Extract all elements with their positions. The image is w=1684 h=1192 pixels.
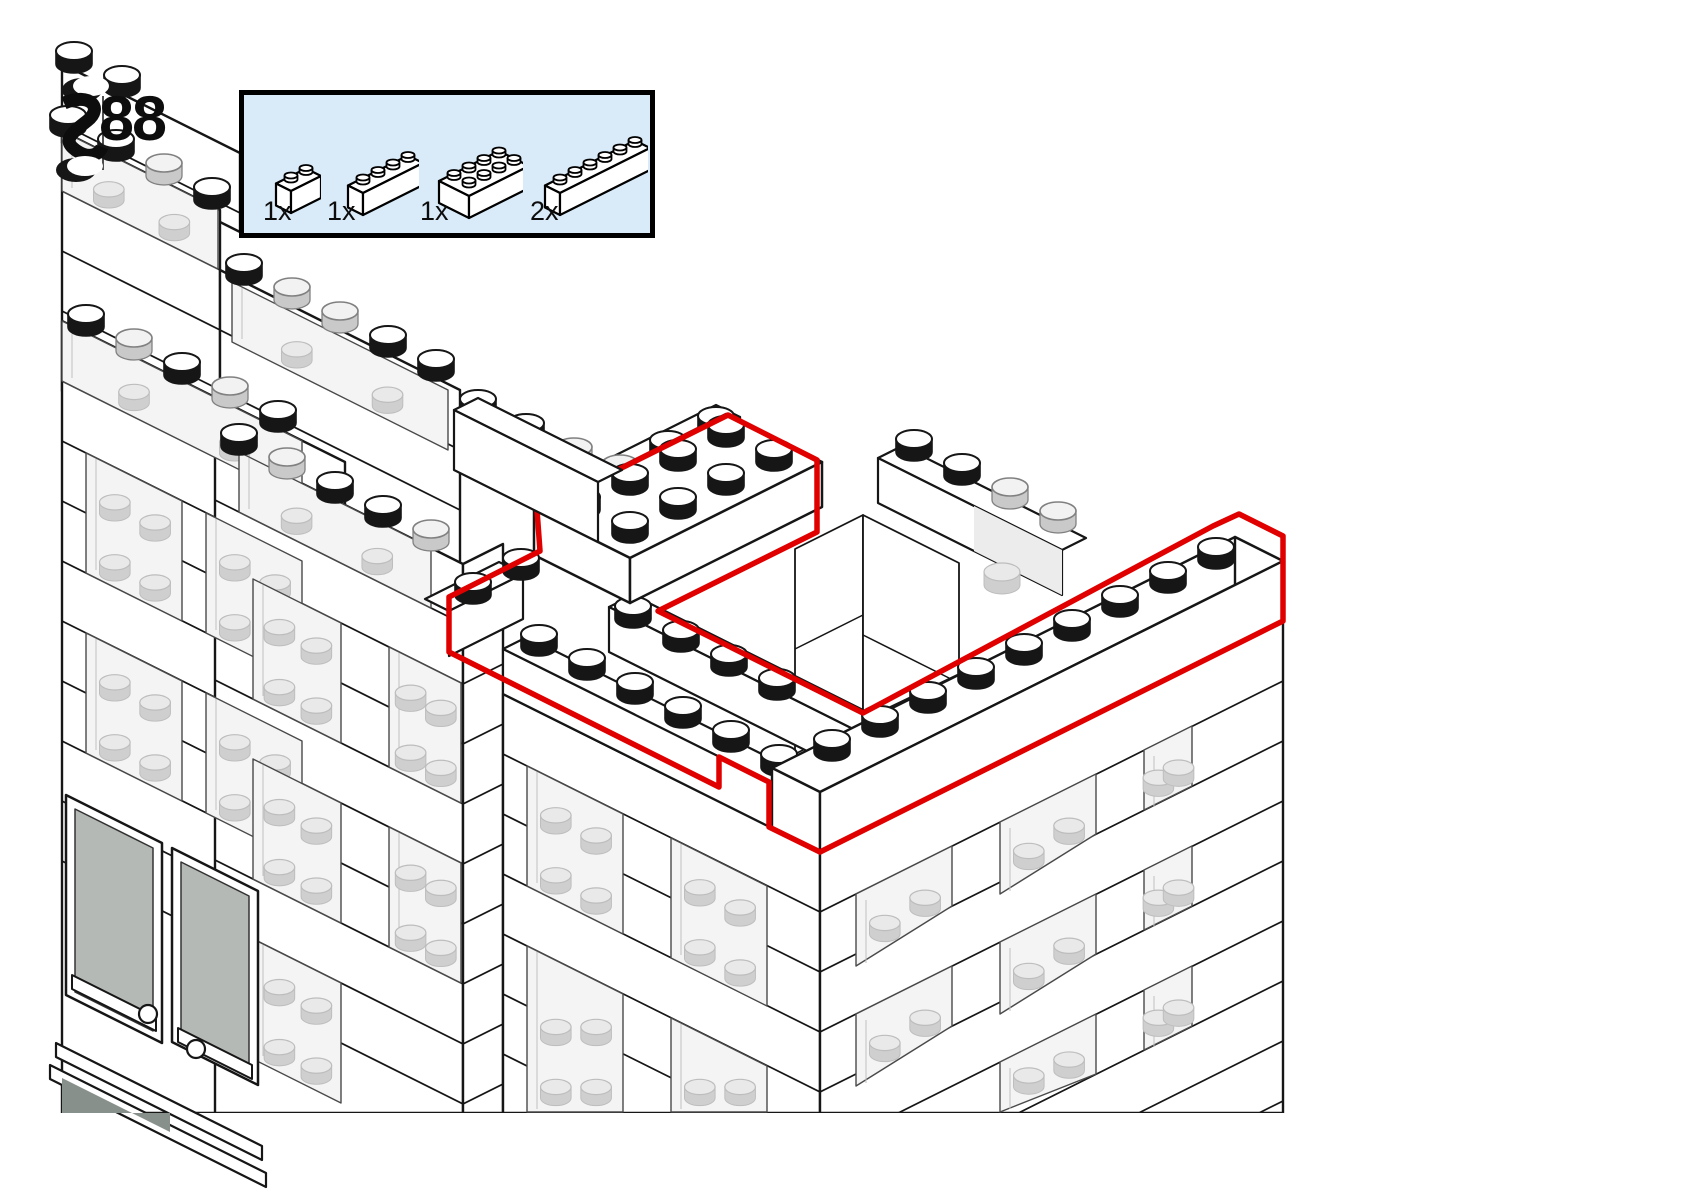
stud [870, 915, 901, 941]
stud [1163, 760, 1194, 786]
stud [140, 575, 171, 601]
stud [116, 329, 152, 360]
stud [220, 735, 251, 761]
stud [264, 860, 295, 886]
stud [100, 675, 131, 701]
stud [194, 178, 230, 209]
stud [1163, 1000, 1194, 1026]
stud [56, 42, 92, 73]
stud [1150, 562, 1186, 593]
stud [322, 302, 358, 333]
stud [870, 1035, 901, 1061]
stud [685, 880, 716, 906]
stud [395, 865, 426, 891]
stud [521, 625, 557, 656]
stud [226, 254, 262, 285]
stud [541, 1019, 572, 1045]
framed-window [172, 848, 258, 1085]
stud [301, 638, 332, 664]
stud [418, 350, 454, 381]
stud [665, 697, 701, 728]
stud [220, 555, 251, 581]
instruction-page: 88 1x 1x 1x 2x [0, 0, 1684, 1192]
stud [1014, 963, 1045, 989]
stud [725, 900, 756, 926]
stud [725, 960, 756, 986]
stud [264, 980, 295, 1006]
stud [68, 305, 104, 336]
part-quantity: 1x [327, 196, 356, 227]
stud [100, 555, 131, 581]
stud [220, 795, 251, 821]
stud [541, 808, 572, 834]
stud [944, 454, 980, 485]
stud [146, 154, 182, 185]
stud [1006, 634, 1042, 665]
stud [685, 940, 716, 966]
stud [910, 1010, 941, 1036]
stud [660, 488, 696, 519]
stud [958, 658, 994, 689]
stud [93, 182, 124, 208]
stud [100, 495, 131, 521]
stud [159, 214, 190, 240]
part-quantity: 1x [420, 196, 449, 227]
stud [269, 448, 305, 479]
stud [617, 673, 653, 704]
stud [164, 353, 200, 384]
stud [910, 890, 941, 916]
stud [282, 342, 313, 368]
stud [1163, 880, 1194, 906]
stud [713, 721, 749, 752]
stud [260, 401, 296, 432]
stud [395, 745, 426, 771]
stud [301, 998, 332, 1024]
stud [1054, 818, 1085, 844]
stud [365, 496, 401, 527]
stud [264, 680, 295, 706]
part-quantity: 1x [263, 196, 292, 227]
stud [264, 620, 295, 646]
stud [140, 755, 171, 781]
stud [1054, 938, 1085, 964]
stud [221, 424, 257, 455]
stud [541, 868, 572, 894]
stud [992, 478, 1028, 509]
stud [212, 377, 248, 408]
stud [301, 818, 332, 844]
stud [581, 828, 612, 854]
stud [612, 512, 648, 543]
stud [264, 1040, 295, 1066]
stud [100, 735, 131, 761]
step-number: 88 [99, 88, 165, 151]
stud [426, 940, 457, 966]
parts-callout: 1x 1x 1x 2x [239, 90, 655, 238]
stud [814, 730, 850, 761]
stud [372, 387, 403, 413]
stud [1054, 1052, 1085, 1078]
stud [274, 278, 310, 309]
stud [220, 615, 251, 641]
stud [301, 878, 332, 904]
stud [426, 760, 457, 786]
stud [281, 508, 312, 534]
stud [395, 925, 426, 951]
stud [426, 880, 457, 906]
stud [708, 464, 744, 495]
stud [581, 1019, 612, 1045]
stud [426, 700, 457, 726]
stud [1014, 843, 1045, 869]
stud [317, 472, 353, 503]
stud [1040, 502, 1076, 533]
building-lines [50, 42, 1283, 1192]
stud [370, 326, 406, 357]
stud [140, 695, 171, 721]
stud [896, 430, 932, 461]
stud [140, 515, 171, 541]
stud [362, 548, 393, 574]
stud [119, 384, 150, 410]
stud [541, 1079, 572, 1105]
stud [581, 888, 612, 914]
stud [685, 1079, 716, 1105]
stud [1102, 586, 1138, 617]
stud [395, 685, 426, 711]
stud [1054, 610, 1090, 641]
stud [413, 520, 449, 551]
stud [264, 800, 295, 826]
part-quantity: 2x [530, 196, 559, 227]
stud [984, 563, 1020, 594]
stud [581, 1079, 612, 1105]
stud [1198, 538, 1234, 569]
stud [301, 1058, 332, 1084]
stud [569, 649, 605, 680]
stud [301, 698, 332, 724]
stud [1014, 1068, 1045, 1094]
stud [725, 1079, 756, 1105]
